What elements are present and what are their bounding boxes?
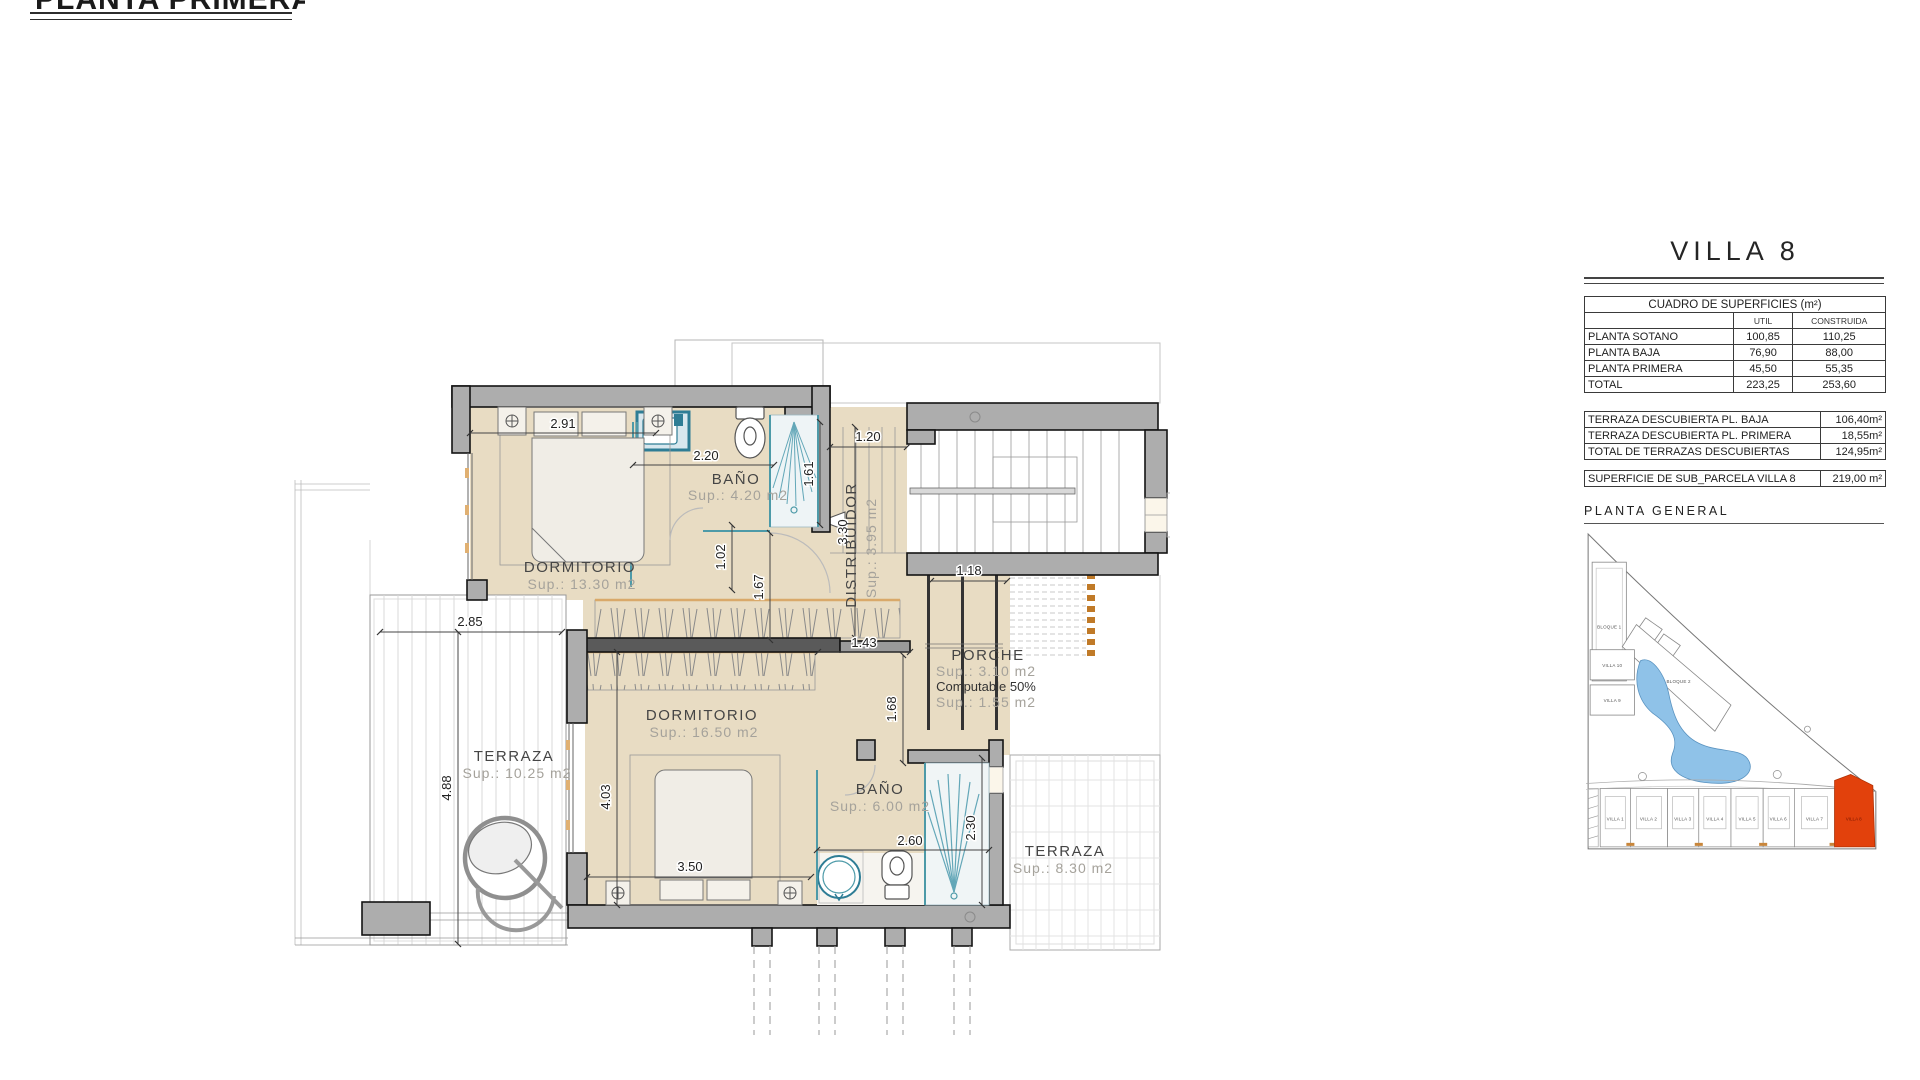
sheet-title-rule [30, 12, 292, 14]
label-villa10: VILLA 10 [1602, 663, 1622, 668]
row-construida: 55,35 [1793, 361, 1886, 377]
terrace-value: 106,40m² [1821, 412, 1886, 428]
dim-dorm2-h: 4.03 [598, 784, 613, 809]
label-terraza-der-sup: Sup.: 8.30 m2 [1013, 860, 1113, 876]
table-row: PLANTA BAJA 76,90 88,00 [1585, 345, 1886, 361]
terrace-label: TERRAZA DESCUBIERTA PL. BAJA [1585, 412, 1821, 428]
dim-shower1-h: 1.61 [801, 461, 816, 486]
table-row: PLANTA SOTANO 100,85 110,25 [1585, 329, 1886, 345]
sheet-title-text: PLANTA PRIMERA [35, 0, 305, 17]
site-plan: BLOQUE 1 BLOQUE 2 VILLA 10 VILLA 9 VILLA… [1578, 532, 1892, 867]
dim-bano2-h: 2.30 [963, 815, 978, 840]
label-villa5: VILLA 5 [1738, 817, 1756, 822]
sheet-title-rule-2 [30, 19, 292, 20]
dim-dorm1-top: 2.91 [550, 416, 575, 431]
terrace-value: 124,95m² [1821, 444, 1886, 460]
table-row: TERRAZA DESCUBIERTA PL. PRIMERA 18,55m² [1585, 428, 1886, 444]
row-util: 100,85 [1733, 329, 1793, 345]
row-util: 45,50 [1733, 361, 1793, 377]
row-construida: 88,00 [1793, 345, 1886, 361]
row-label: PLANTA SOTANO [1585, 329, 1734, 345]
label-villa8: VILLA 8 [1846, 817, 1862, 822]
label-terraza-izq-sup: Sup.: 10.25 m2 [463, 765, 572, 781]
dim-gap2: 1.67 [751, 574, 766, 599]
row-construida: 253,60 [1793, 377, 1886, 393]
planta-general-rule [1584, 523, 1884, 524]
label-dormitorio1-sup: Sup.: 13.30 m2 [528, 576, 637, 592]
label-porche-sup: Sup.: 3.10 m2 [936, 663, 1036, 679]
label-bano2: BAÑO [856, 781, 905, 798]
parcel-label: SUPERFICIE DE SUB_PARCELA VILLA 8 [1585, 471, 1821, 487]
label-villa2: VILLA 2 [1640, 817, 1658, 822]
dim-porche-w: 1.18 [956, 563, 981, 578]
toilet2 [882, 851, 912, 899]
label-porche: PORCHE [951, 647, 1024, 664]
label-dormitorio1: DORMITORIO [524, 559, 636, 576]
row-util: 223,25 [1733, 377, 1793, 393]
parcel-value: 219,00 m² [1821, 471, 1886, 487]
dim-terr1-w: 2.85 [457, 614, 482, 629]
dim-dorm2-w: 3.50 [677, 859, 702, 874]
table-row: SUPERFICIE DE SUB_PARCELA VILLA 8 219,00… [1585, 471, 1886, 487]
dim-porche-h: 1.68 [884, 696, 899, 721]
label-dormitorio2: DORMITORIO [646, 707, 758, 724]
window-bedroom2 [566, 723, 573, 853]
terraces-table: TERRAZA DESCUBIERTA PL. BAJA 106,40m² TE… [1584, 411, 1886, 460]
table-row: TERRAZA DESCUBIERTA PL. BAJA 106,40m² [1585, 412, 1886, 428]
table-row: PLANTA PRIMERA 45,50 55,35 [1585, 361, 1886, 377]
floor-plan-sheet: { "page": { "title": "PLANTA PRIMERA" },… [0, 0, 1920, 1080]
label-villa4: VILLA 4 [1706, 817, 1724, 822]
label-bano1: BAÑO [712, 471, 761, 488]
label-bano2-sup: Sup.: 6.00 m2 [830, 798, 930, 814]
villa-title: VILLA 8 [1578, 236, 1892, 267]
sink2 [818, 856, 860, 898]
label-porche-sup2: Sup.: 1.55 m2 [936, 694, 1036, 710]
surfaces-table: CUADRO DE SUPERFICIES (m²) UTIL CONSTRUI… [1584, 296, 1886, 393]
villa-title-rule-2 [1584, 283, 1884, 284]
column-projections [754, 946, 970, 1035]
parcel-table: SUPERFICIE DE SUB_PARCELA VILLA 8 219,00… [1584, 470, 1886, 487]
villa8-highlight [1835, 774, 1875, 846]
label-villa1: VILLA 1 [1607, 817, 1625, 822]
row-construida: 110,25 [1793, 329, 1886, 345]
row-label: TOTAL [1585, 377, 1734, 393]
row-label: PLANTA PRIMERA [1585, 361, 1734, 377]
table-row: TOTAL DE TERRAZAS DESCUBIERTAS 124,95m² [1585, 444, 1886, 460]
toilet1 [735, 407, 765, 458]
terrace-label: TOTAL DE TERRAZAS DESCUBIERTAS [1585, 444, 1821, 460]
label-bano1-sup: Sup.: 4.20 m2 [688, 487, 788, 503]
dim-bano1-w: 2.20 [693, 448, 718, 463]
label-villa6: VILLA 6 [1770, 817, 1788, 822]
label-terraza-der: TERRAZA [1025, 843, 1106, 860]
label-dormitorio2-sup: Sup.: 16.50 m2 [650, 724, 759, 740]
floor-plan-drawing: 2.91 2.20 1.61 1.20 3.30 1.02 1.67 2.85 … [270, 300, 1170, 1040]
label-distribuidor-sup: Sup.: 3.95 m2 [863, 498, 879, 598]
dim-distrib-w: 1.20 [855, 429, 880, 444]
label-bloque2: BLOQUE 2 [1667, 679, 1691, 684]
label-villa7: VILLA 7 [1806, 817, 1824, 822]
stair-window [1145, 493, 1170, 537]
shower2 [925, 763, 989, 905]
door-terrace-right [989, 767, 1003, 793]
row-util: 76,90 [1733, 345, 1793, 361]
surfaces-col-util: UTIL [1733, 313, 1793, 329]
label-porche-computable: Computable 50% [936, 679, 1036, 694]
surfaces-col-construida: CONSTRUIDA [1793, 313, 1886, 329]
label-distribuidor: DISTRIBUIDOR [843, 482, 860, 608]
villa-title-rule [1584, 277, 1884, 279]
surfaces-col-empty [1585, 313, 1734, 329]
dim-closet: 1.43 [851, 635, 876, 650]
surfaces-table-title: CUADRO DE SUPERFICIES (m²) [1585, 297, 1886, 313]
dim-terr1-h: 4.88 [439, 775, 454, 800]
table-row: TOTAL 223,25 253,60 [1585, 377, 1886, 393]
dim-gap1: 1.02 [713, 544, 728, 569]
label-bloque1: BLOQUE 1 [1597, 625, 1621, 630]
terrace-value: 18,55m² [1821, 428, 1886, 444]
row-label: PLANTA BAJA [1585, 345, 1734, 361]
terrace-label: TERRAZA DESCUBIERTA PL. PRIMERA [1585, 428, 1821, 444]
planta-general-heading: PLANTA GENERAL [1584, 504, 1729, 518]
label-villa3: VILLA 3 [1674, 817, 1692, 822]
label-villa9: VILLA 9 [1604, 698, 1622, 703]
label-terraza-izq: TERRAZA [474, 748, 555, 765]
dim-bano2-w: 2.60 [897, 833, 922, 848]
